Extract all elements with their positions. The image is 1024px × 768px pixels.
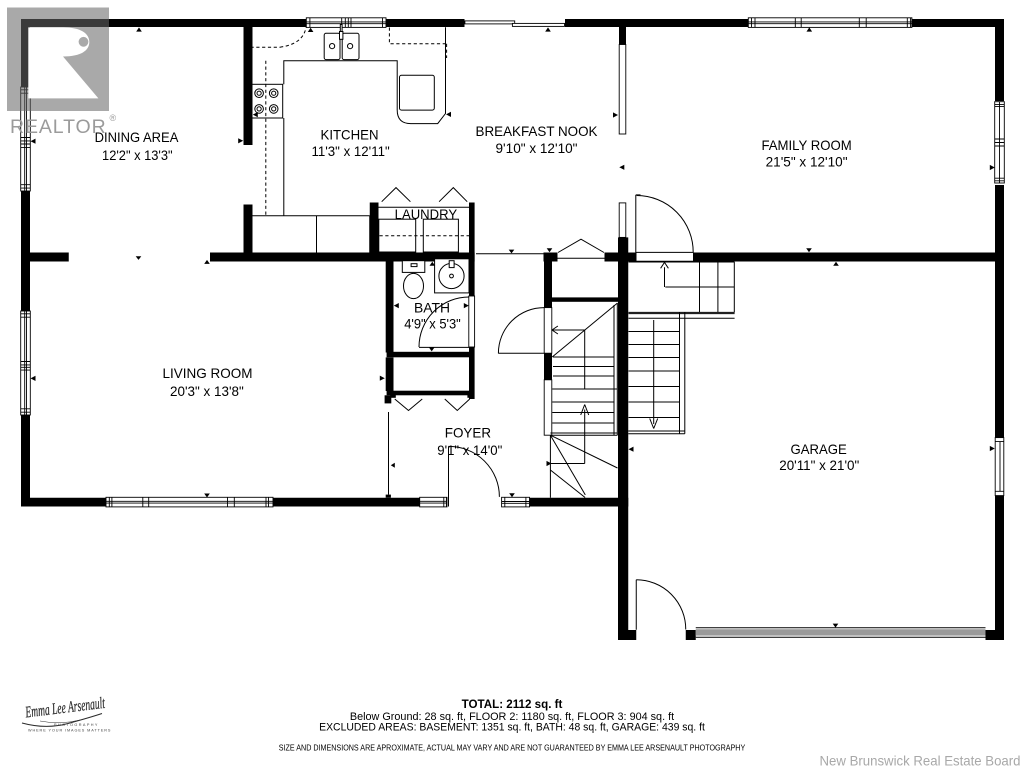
svg-text:21'5" x 12'10": 21'5" x 12'10": [766, 153, 848, 169]
svg-text:LAUNDRY: LAUNDRY: [395, 206, 458, 222]
svg-text:®: ®: [110, 113, 117, 123]
svg-text:REALTOR: REALTOR: [10, 116, 107, 138]
svg-text:FAMILY ROOM: FAMILY ROOM: [761, 137, 851, 153]
svg-text:9'1" x 14'0": 9'1" x 14'0": [437, 442, 502, 458]
svg-text:20'3" x 13'8": 20'3" x 13'8": [170, 383, 244, 399]
svg-text:BREAKFAST NOOK: BREAKFAST NOOK: [476, 123, 599, 139]
svg-text:New Brunswick Real Estate Boar: New Brunswick Real Estate Board: [820, 752, 1021, 768]
svg-text:DINING AREA: DINING AREA: [95, 129, 179, 145]
svg-text:PHOTOGRAPHY: PHOTOGRAPHY: [54, 723, 99, 727]
svg-text:WHERE YOUR IMAGES MATTERS: WHERE YOUR IMAGES MATTERS: [28, 728, 111, 732]
svg-text:FOYER: FOYER: [445, 425, 491, 441]
svg-text:9'10" x 12'10": 9'10" x 12'10": [496, 140, 578, 156]
svg-text:SIZE AND DIMENSIONS ARE APROXI: SIZE AND DIMENSIONS ARE APROXIMATE, ACTU…: [279, 743, 746, 753]
svg-text:GARAGE: GARAGE: [790, 441, 846, 457]
svg-text:LIVING ROOM: LIVING ROOM: [163, 365, 253, 381]
svg-text:KITCHEN: KITCHEN: [321, 126, 379, 142]
svg-text:20'11" x 21'0": 20'11" x 21'0": [779, 457, 859, 473]
svg-text:EXCLUDED AREAS: BASEMENT: 1351: EXCLUDED AREAS: BASEMENT: 1351 sq. ft, B…: [319, 722, 706, 734]
svg-text:BATH: BATH: [414, 299, 450, 315]
svg-text:4'9" x 5'3": 4'9" x 5'3": [404, 315, 461, 331]
svg-text:12'2" x 13'3": 12'2" x 13'3": [102, 147, 173, 163]
svg-text:Emma Lee Arsenault: Emma Lee Arsenault: [24, 694, 106, 722]
svg-text:TOTAL: 2112 sq. ft: TOTAL: 2112 sq. ft: [462, 698, 563, 711]
svg-text:11'3" x 12'11": 11'3" x 12'11": [311, 143, 389, 159]
